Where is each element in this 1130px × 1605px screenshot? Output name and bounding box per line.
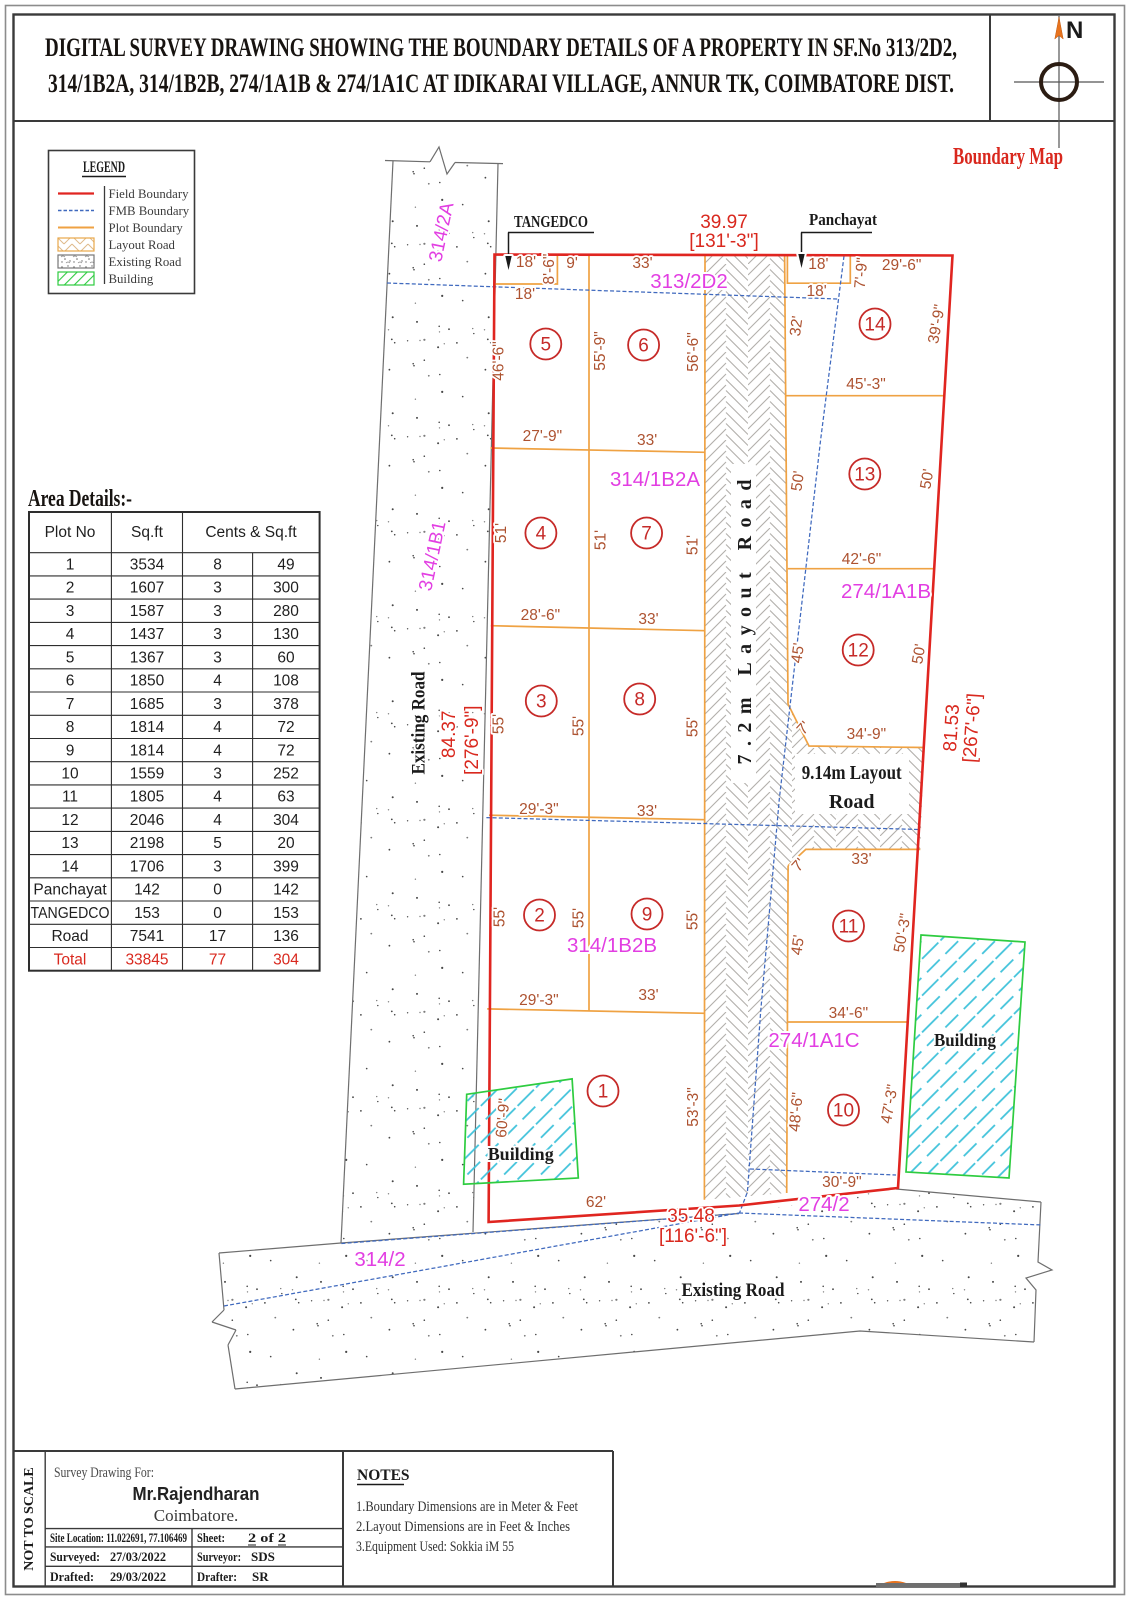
svg-text:3534: 3534 [130, 557, 165, 574]
svg-text:3: 3 [213, 649, 222, 666]
svg-text:5: 5 [541, 335, 552, 356]
svg-text:1805: 1805 [130, 789, 164, 806]
svg-text:55': 55' [570, 908, 587, 928]
svg-text:2: 2 [534, 906, 545, 927]
svg-text:18': 18' [516, 254, 536, 271]
svg-text:7541: 7541 [130, 928, 164, 945]
svg-text:51': 51' [493, 523, 510, 543]
svg-text:56'-6": 56'-6" [685, 332, 702, 371]
svg-text:NOT TO SCALE: NOT TO SCALE [22, 1467, 37, 1571]
svg-text:6: 6 [638, 336, 649, 357]
svg-text:33': 33' [851, 851, 871, 868]
svg-text:274/2: 274/2 [798, 1193, 849, 1216]
svg-text:4: 4 [213, 789, 222, 806]
svg-text:55': 55' [570, 716, 587, 736]
svg-text:304: 304 [273, 812, 299, 829]
svg-text:314/2: 314/2 [354, 1248, 405, 1271]
svg-text:Cents & Sq.ft: Cents & Sq.ft [205, 524, 297, 541]
svg-text:33': 33' [637, 803, 657, 820]
svg-text:29'-6": 29'-6" [882, 257, 921, 274]
svg-text:136: 136 [273, 928, 299, 945]
svg-text:3: 3 [213, 626, 222, 643]
svg-text:33': 33' [638, 987, 658, 1004]
svg-text:1559: 1559 [130, 766, 164, 783]
svg-text:55': 55' [491, 714, 508, 734]
svg-text:2: 2 [66, 580, 75, 597]
svg-text:1: 1 [598, 1082, 609, 1103]
svg-text:55': 55' [492, 907, 509, 927]
svg-text:12: 12 [61, 812, 78, 829]
svg-text:1607: 1607 [130, 580, 164, 597]
svg-text:Panchayat: Panchayat [33, 882, 107, 899]
svg-text:3: 3 [213, 603, 222, 620]
svg-text:34'-6": 34'-6" [829, 1005, 868, 1022]
svg-text:304: 304 [273, 951, 299, 968]
svg-text:55'-9": 55'-9" [592, 331, 609, 370]
svg-text:3: 3 [213, 858, 222, 875]
svg-text:9': 9' [566, 255, 578, 272]
svg-text:Panchayat: Panchayat [809, 210, 877, 229]
svg-text:45'-3": 45'-3" [846, 376, 885, 393]
svg-text:Road: Road [51, 928, 88, 945]
svg-text:8: 8 [634, 690, 645, 711]
svg-text:10: 10 [61, 766, 79, 783]
svg-text:62': 62' [586, 1194, 606, 1211]
svg-text:1.Boundary Dimensions are in M: 1.Boundary Dimensions are in Meter & Fee… [356, 1499, 578, 1515]
svg-text:SR: SR [252, 1569, 269, 1584]
svg-text:30'-9": 30'-9" [822, 1174, 861, 1191]
svg-text:130: 130 [273, 626, 299, 643]
svg-text:46'-6": 46'-6" [491, 341, 508, 380]
svg-text:7: 7 [641, 524, 652, 545]
svg-text:27'-9": 27'-9" [523, 428, 562, 445]
svg-text:1814: 1814 [130, 719, 165, 736]
svg-text:18': 18' [515, 286, 535, 303]
svg-text:1437: 1437 [130, 626, 164, 643]
svg-text:34'-9": 34'-9" [847, 726, 886, 743]
svg-text:314/1B2B: 314/1B2B [567, 934, 657, 957]
svg-text:Road: Road [829, 791, 875, 813]
svg-text:7: 7 [66, 696, 75, 713]
svg-text:4: 4 [536, 524, 547, 545]
svg-text:Survey Drawing For:: Survey Drawing For: [54, 1465, 154, 1481]
svg-text:14: 14 [864, 315, 886, 336]
svg-text:7'-9": 7'-9" [852, 257, 872, 289]
svg-text:274/1A1B: 274/1A1B [841, 580, 931, 603]
svg-text:9: 9 [66, 742, 75, 759]
svg-text:Existing Road: Existing Road [109, 255, 182, 269]
svg-text:29'-3": 29'-3" [519, 801, 558, 818]
svg-text:8'-6": 8'-6" [541, 254, 558, 285]
svg-text:20: 20 [277, 835, 295, 852]
svg-text:5: 5 [213, 835, 222, 852]
svg-text:[131'-3"]: [131'-3"] [689, 231, 759, 252]
svg-text:Mr.Rajendharan: Mr.Rajendharan [133, 1484, 260, 1504]
svg-text:72: 72 [277, 719, 294, 736]
svg-text:29'-3": 29'-3" [519, 992, 558, 1009]
svg-text:108: 108 [273, 673, 299, 690]
svg-text:Surveyed:: Surveyed: [50, 1549, 100, 1564]
svg-text:10: 10 [833, 1101, 854, 1122]
svg-text:Coimbatore.: Coimbatore. [154, 1506, 239, 1525]
svg-text:17: 17 [209, 928, 226, 945]
svg-text:60'-9": 60'-9" [493, 1098, 513, 1139]
svg-text:1850: 1850 [130, 673, 165, 690]
svg-text:Area Details:-: Area Details:- [28, 486, 132, 512]
svg-text:SDS: SDS [251, 1549, 275, 1564]
svg-text:11: 11 [839, 917, 859, 938]
svg-text:3: 3 [213, 766, 222, 783]
svg-text:4: 4 [213, 673, 222, 690]
svg-text:8: 8 [66, 719, 75, 736]
svg-text:313/2D2: 313/2D2 [650, 270, 728, 293]
svg-text:2198: 2198 [130, 835, 164, 852]
svg-text:5: 5 [66, 649, 75, 666]
svg-text:8: 8 [213, 557, 222, 574]
svg-text:4: 4 [213, 719, 222, 736]
svg-text:2046: 2046 [130, 812, 164, 829]
svg-text:Plot Boundary: Plot Boundary [109, 221, 184, 235]
svg-text:FMB Boundary: FMB Boundary [109, 204, 190, 218]
svg-text:4: 4 [213, 742, 222, 759]
svg-text:42'-6": 42'-6" [842, 551, 881, 568]
svg-text:252: 252 [273, 766, 299, 783]
svg-text:Total: Total [54, 951, 87, 968]
svg-text:0: 0 [213, 905, 222, 922]
svg-text:29/03/2022: 29/03/2022 [110, 1569, 166, 1584]
svg-text:84.37: 84.37 [439, 711, 460, 759]
svg-text:32': 32' [787, 315, 807, 337]
svg-text:33': 33' [637, 432, 657, 449]
svg-text:11: 11 [62, 789, 78, 806]
svg-text:1587: 1587 [130, 603, 164, 620]
svg-text:3: 3 [213, 580, 222, 597]
svg-text:TANGEDCO: TANGEDCO [514, 212, 588, 231]
svg-text:Drafter:: Drafter: [197, 1569, 237, 1584]
svg-text:12: 12 [848, 641, 869, 662]
svg-text:3: 3 [213, 696, 222, 713]
svg-text:72: 72 [277, 742, 294, 759]
svg-text:50': 50' [909, 643, 929, 666]
svg-text:39.97: 39.97 [700, 212, 748, 233]
svg-text:378: 378 [273, 696, 299, 713]
svg-text:33': 33' [638, 611, 658, 628]
svg-text:0: 0 [213, 882, 222, 899]
svg-text:1814: 1814 [130, 742, 165, 759]
svg-text:DIGITAL SURVEY DRAWING SHOWING: DIGITAL SURVEY DRAWING SHOWING THE BOUND… [45, 32, 957, 62]
svg-text:4: 4 [213, 812, 222, 829]
svg-text:18': 18' [806, 283, 826, 300]
svg-text:399: 399 [273, 858, 299, 875]
svg-text:3: 3 [536, 692, 547, 713]
svg-text:45': 45' [788, 934, 808, 956]
svg-text:314/1B2A: 314/1B2A [610, 468, 700, 491]
svg-text:35.48: 35.48 [667, 1206, 715, 1227]
svg-text:142: 142 [134, 882, 160, 899]
svg-text:Boundary Map: Boundary Map [953, 144, 1063, 170]
svg-text:2 of 2: 2 of 2 [248, 1530, 286, 1545]
svg-text:153: 153 [134, 905, 160, 922]
svg-text:60: 60 [277, 649, 295, 666]
svg-text:55': 55' [684, 717, 701, 737]
svg-text:Existing Road: Existing Road [682, 1280, 785, 1301]
svg-text:45': 45' [788, 642, 808, 664]
svg-text:9.14m Layout: 9.14m Layout [802, 762, 902, 784]
svg-text:300: 300 [273, 580, 299, 597]
svg-text:50': 50' [917, 468, 937, 491]
svg-text:3: 3 [66, 603, 75, 620]
svg-text:N: N [1066, 17, 1083, 44]
svg-text:48'-6": 48'-6" [786, 1092, 806, 1133]
svg-text:55': 55' [684, 910, 701, 930]
svg-text:Sq.ft: Sq.ft [131, 524, 164, 541]
svg-text:28'-6": 28'-6" [521, 607, 560, 624]
svg-text:142: 142 [273, 882, 299, 899]
svg-text:18': 18' [808, 256, 828, 273]
svg-text:77: 77 [209, 951, 226, 968]
svg-text:[116'-6"]: [116'-6"] [659, 1226, 727, 1247]
svg-text:3.Equipment Used: Sokkia iM 55: 3.Equipment Used: Sokkia iM 55 [356, 1539, 514, 1555]
svg-text:Building: Building [488, 1144, 554, 1164]
svg-text:Surveyor:: Surveyor: [197, 1549, 241, 1564]
svg-text:NOTES: NOTES [357, 1467, 410, 1484]
svg-text:63: 63 [277, 789, 294, 806]
svg-text:LEGEND: LEGEND [83, 159, 125, 176]
svg-text:9: 9 [642, 905, 653, 926]
svg-text:14: 14 [61, 858, 79, 875]
svg-text:13: 13 [61, 835, 78, 852]
svg-text:Field Boundary: Field Boundary [109, 187, 190, 201]
svg-text:1: 1 [66, 557, 75, 574]
svg-text:153: 153 [273, 905, 299, 922]
svg-text:Sheet:: Sheet: [197, 1530, 225, 1545]
svg-text:Plot No: Plot No [45, 524, 96, 541]
svg-text:27/03/2022: 27/03/2022 [110, 1549, 166, 1564]
svg-text:50': 50' [788, 470, 808, 492]
svg-text:1685: 1685 [130, 696, 164, 713]
svg-text:6: 6 [66, 673, 75, 690]
svg-text:274/1A1C: 274/1A1C [768, 1029, 859, 1052]
svg-text:2.Layout Dimensions are in Fee: 2.Layout Dimensions are in Feet & Inches [356, 1519, 570, 1535]
svg-text:49: 49 [277, 557, 294, 574]
svg-text:4: 4 [66, 626, 75, 643]
svg-text:280: 280 [273, 603, 299, 620]
svg-text:Drafted:: Drafted: [50, 1569, 94, 1584]
svg-text:1367: 1367 [130, 649, 164, 666]
svg-text:51': 51' [684, 535, 701, 555]
svg-text:Building: Building [109, 272, 154, 286]
svg-text:TANGEDCO: TANGEDCO [31, 905, 110, 922]
svg-text:33845: 33845 [125, 951, 168, 968]
svg-text:Layout Road: Layout Road [109, 238, 176, 252]
svg-text:Existing Road: Existing Road [409, 671, 430, 774]
svg-text:1706: 1706 [130, 858, 164, 875]
svg-text:Building: Building [934, 1030, 996, 1050]
svg-text:314/1B2A, 314/1B2B, 274/1A1B &: 314/1B2A, 314/1B2B, 274/1A1B & 274/1A1C … [48, 68, 954, 98]
svg-text:13: 13 [854, 465, 875, 486]
svg-text:[276'-9"]: [276'-9"] [462, 705, 483, 775]
svg-text:51': 51' [592, 530, 609, 550]
svg-text:Site Location: 11.022691, 77.1: Site Location: 11.022691, 77.106469 [50, 1530, 187, 1545]
svg-text:53'-3": 53'-3" [685, 1087, 702, 1126]
